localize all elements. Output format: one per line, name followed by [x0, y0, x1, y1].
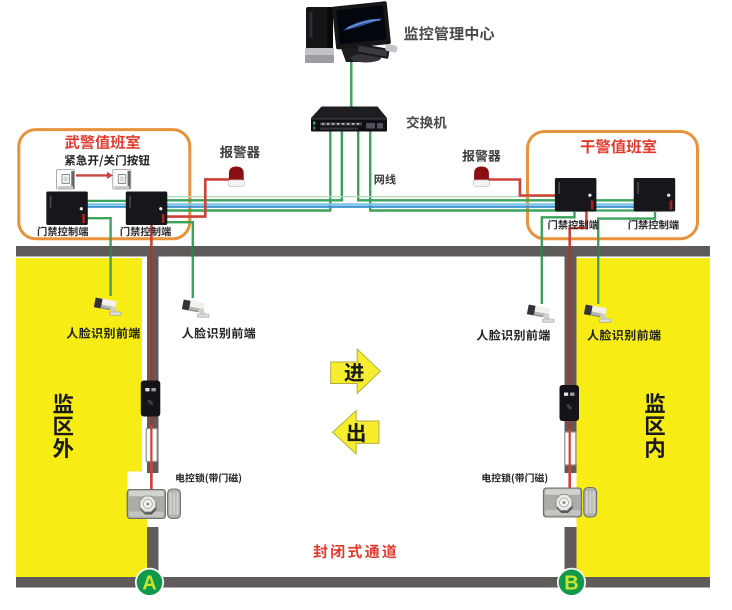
svg-text:B: B: [564, 572, 578, 594]
svg-text:A: A: [142, 572, 156, 594]
